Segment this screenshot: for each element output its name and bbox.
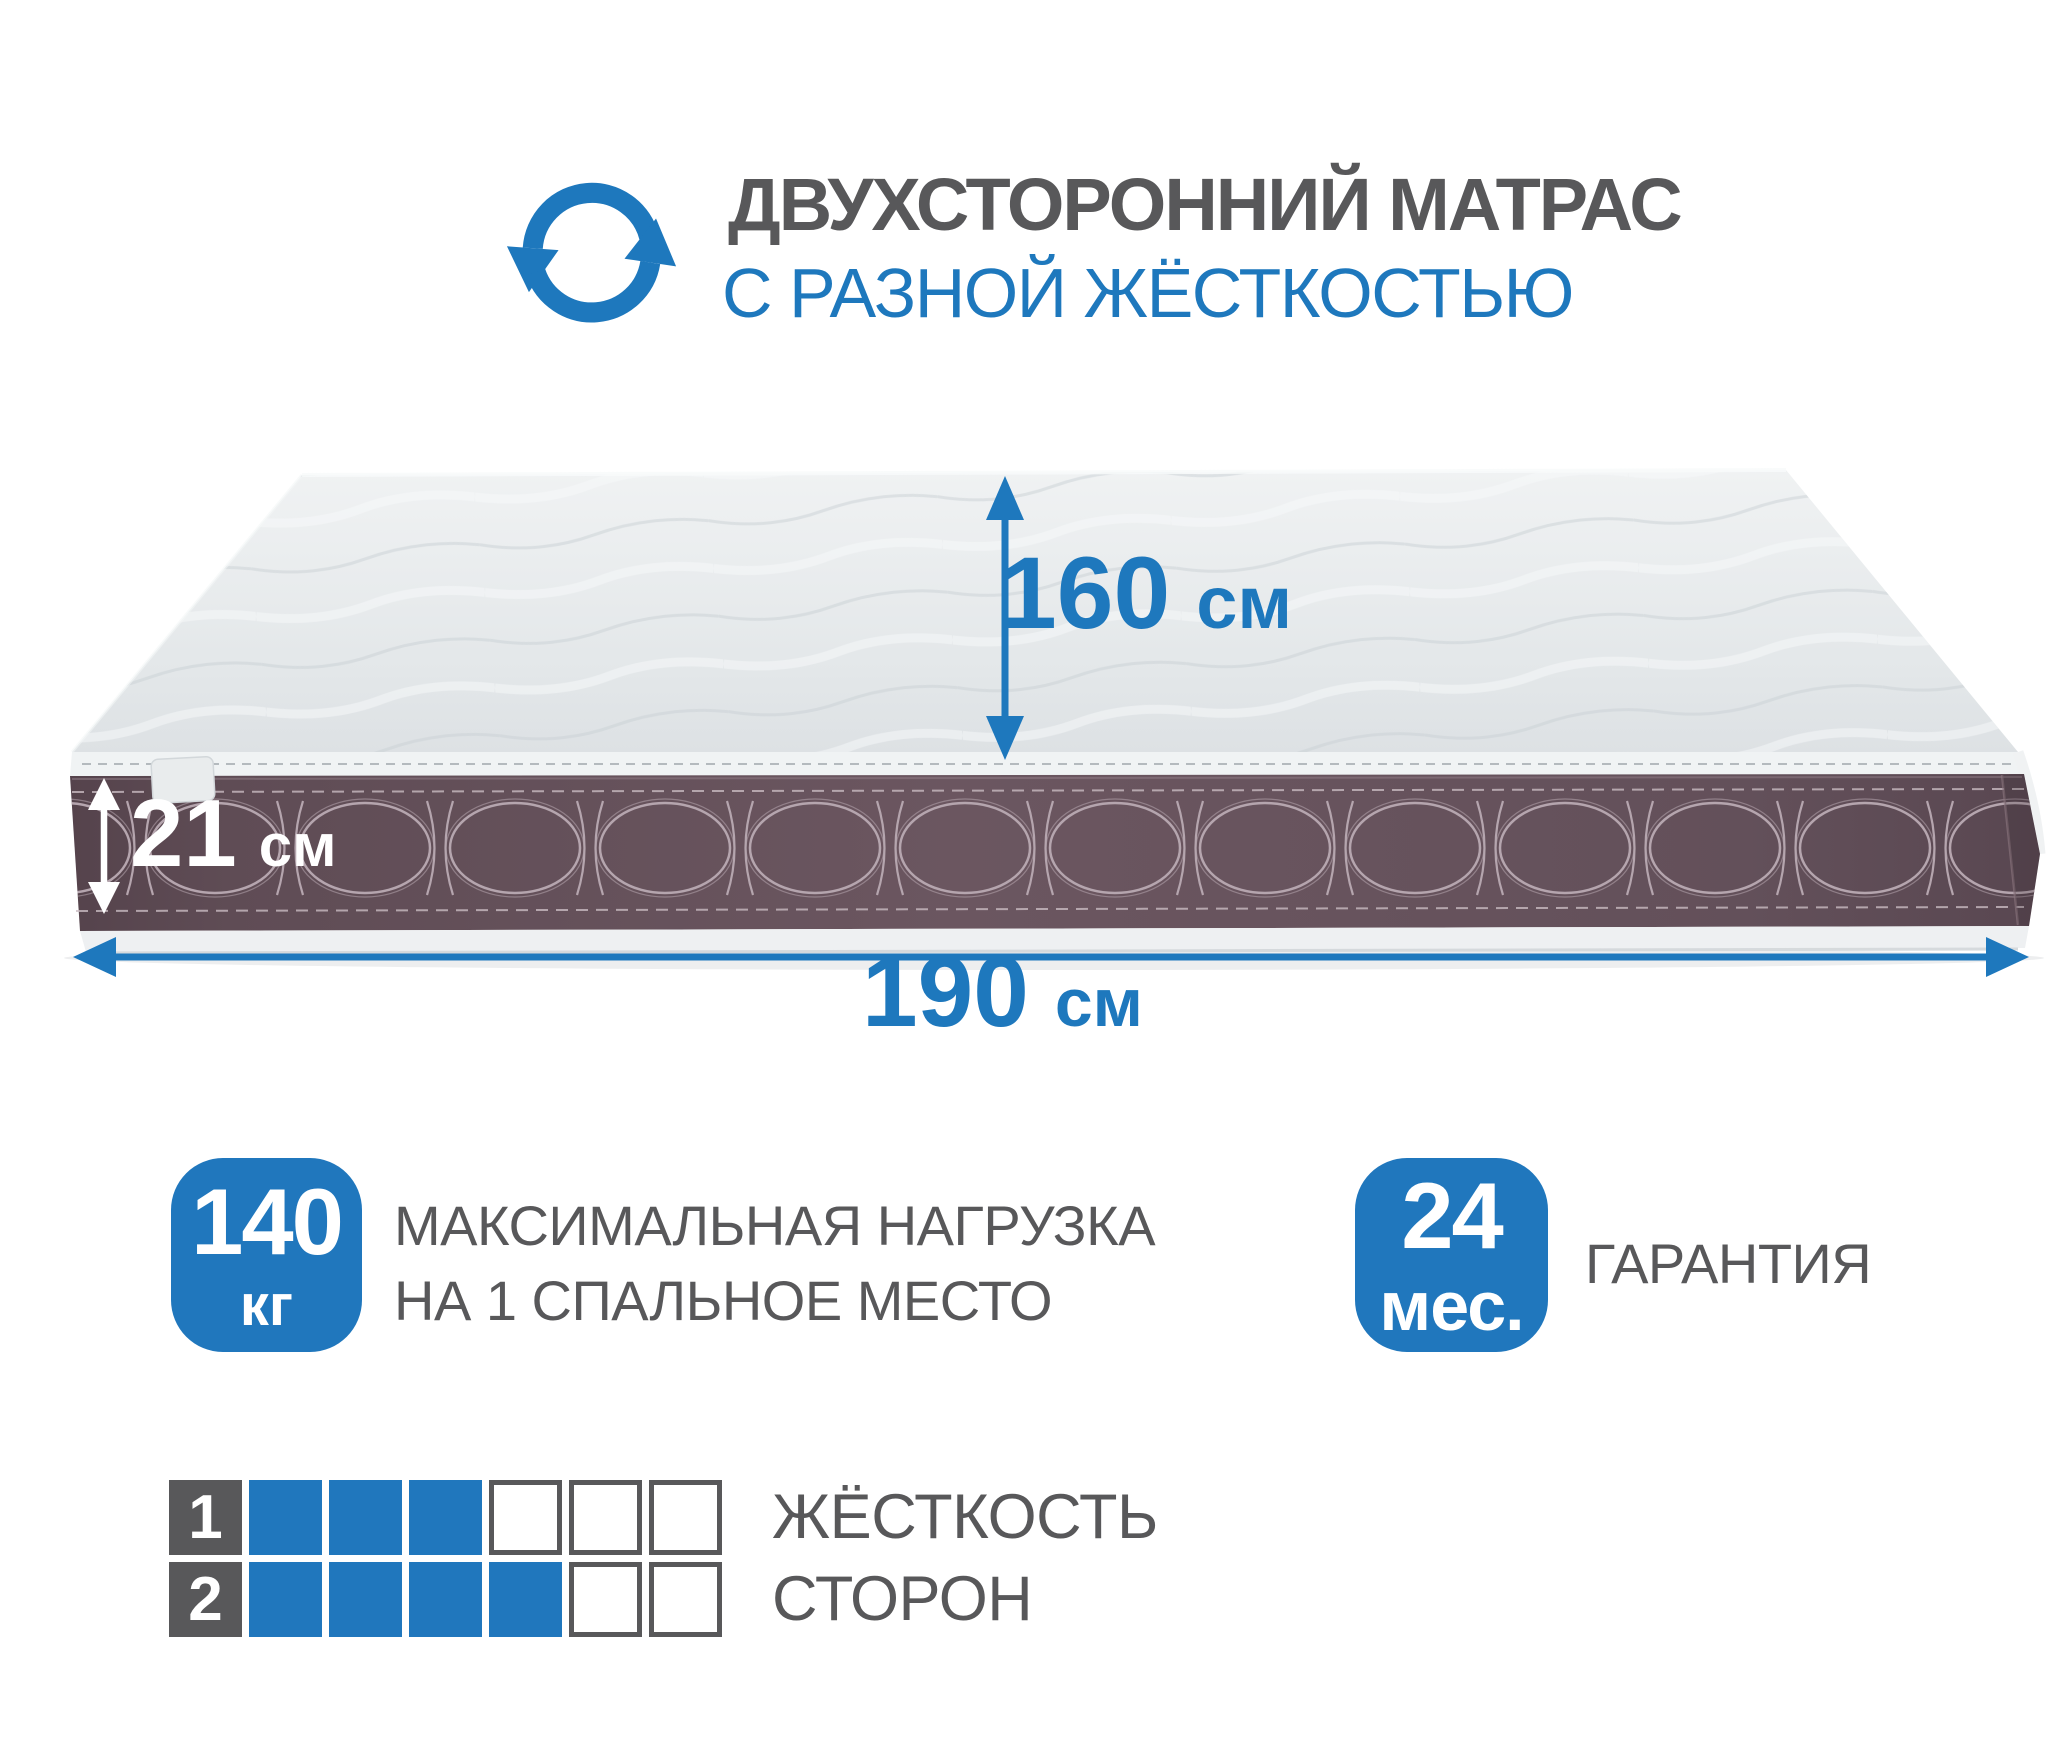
page: ДВУХСТОРОННИЙ МАТРАС С РАЗНОЙ ЖЁСТКОСТЬЮ [0,0,2048,1757]
max-load-label: МАКСИМАЛЬНАЯ НАГРУЗКА НА 1 СПАЛЬНОЕ МЕСТ… [394,1188,1155,1338]
firmness-cell-filled [409,1562,482,1637]
firmness-caption-line1: ЖЁСТКОСТЬ [772,1480,1158,1555]
max-load-label-line2: НА 1 СПАЛЬНОЕ МЕСТО [394,1263,1155,1338]
height-unit: см [259,812,337,879]
max-load-unit: кг [240,1277,293,1335]
mattress-illustration [0,380,2048,1020]
firmness-cell-empty [649,1480,722,1555]
page-title: ДВУХСТОРОННИЙ МАТРАС [728,168,1681,242]
warranty-label: ГАРАНТИЯ [1585,1226,1871,1301]
warranty-value: 24 [1401,1169,1502,1263]
firmness-cell-filled [329,1562,402,1637]
width-dimension-label: 190см [862,942,1143,1042]
max-load-label-line1: МАКСИМАЛЬНАЯ НАГРУЗКА [394,1188,1155,1263]
firmness-cell-filled [249,1562,322,1637]
mattress-side-band [58,774,2043,931]
rotate-arrows-icon [506,166,678,338]
firmness-cell-filled [409,1480,482,1555]
firmness-cell-empty [489,1480,562,1555]
depth-dimension-label: 160см [1000,542,1292,644]
firmness-side-number: 2 [169,1562,242,1637]
width-unit: см [1055,965,1143,1041]
firmness-cell-filled [329,1480,402,1555]
height-value: 21 [130,780,237,887]
firmness-caption-line2: СТОРОН [772,1562,1032,1637]
warranty-badge: 24 мес. [1355,1158,1548,1352]
firmness-cell-filled [489,1562,562,1637]
firmness-cell-empty [569,1480,642,1555]
firmness-cell-empty [569,1562,642,1637]
firmness-row-side2: 2 [169,1562,722,1637]
depth-value: 160 [1000,536,1170,650]
firmness-cell-empty [649,1562,722,1637]
max-load-value: 140 [191,1175,342,1269]
page-subtitle: С РАЗНОЙ ЖЁСТКОСТЬЮ [722,258,1573,328]
firmness-row-side1: 1 [169,1480,722,1555]
height-dimension-label: 21см [130,786,337,882]
depth-unit: см [1196,561,1292,644]
firmness-side-number: 1 [169,1480,242,1555]
width-value: 190 [862,936,1029,1048]
firmness-cell-filled [249,1480,322,1555]
warranty-unit: мес. [1379,1271,1523,1341]
max-load-badge: 140 кг [171,1158,362,1352]
